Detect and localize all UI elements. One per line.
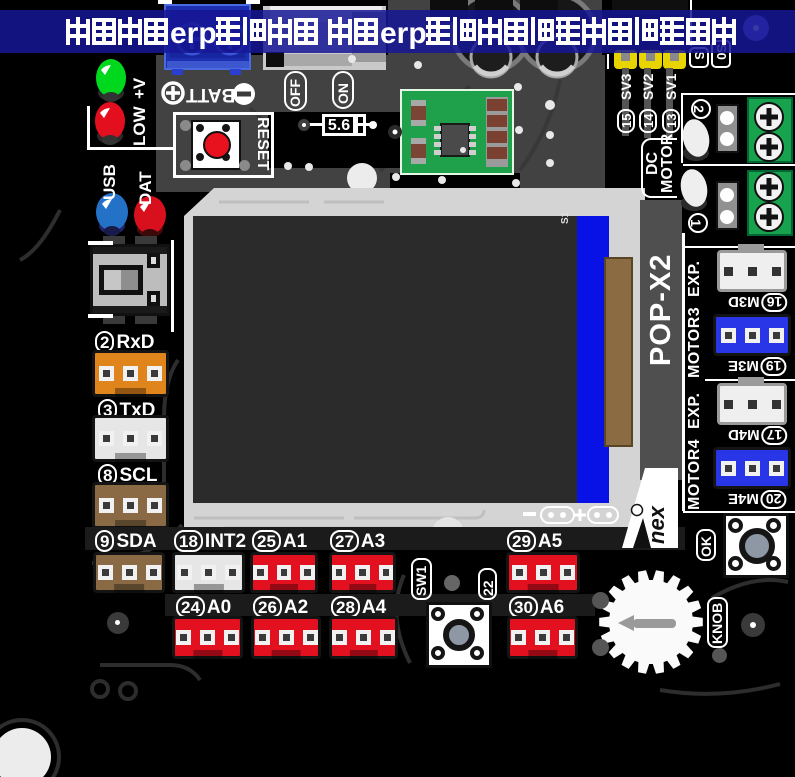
- svg-text:erp: erp: [380, 17, 427, 50]
- svg-text:nex: nex: [644, 505, 669, 544]
- svg-text:erp: erp: [170, 17, 217, 50]
